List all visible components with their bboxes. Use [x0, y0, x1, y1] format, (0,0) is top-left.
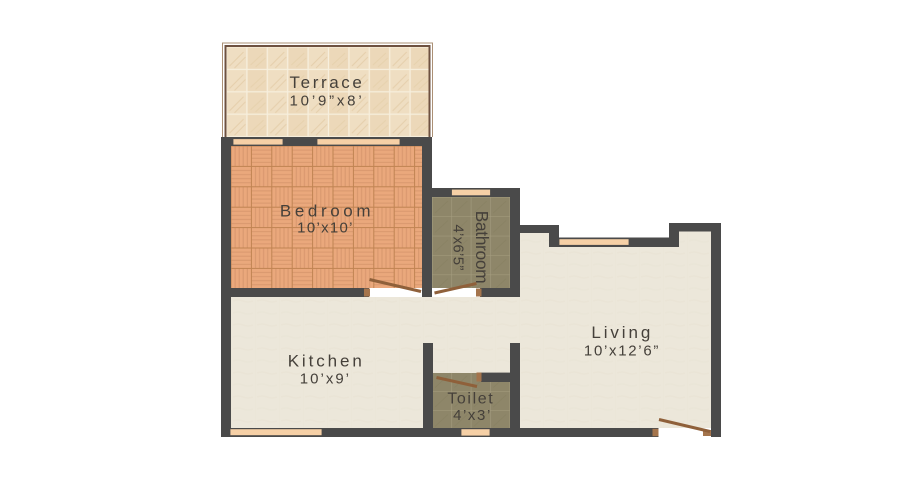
- svg-text:Bathroom: Bathroom: [472, 211, 492, 284]
- svg-text:Bedroom: Bedroom: [280, 201, 374, 220]
- svg-text:Toilet: Toilet: [447, 391, 494, 408]
- svg-text:10’x10’: 10’x10’: [297, 219, 354, 236]
- svg-text:Kitchen: Kitchen: [288, 351, 365, 370]
- svg-text:4’x3’: 4’x3’: [453, 407, 492, 424]
- svg-text:4’x6’5”: 4’x6’5”: [450, 224, 467, 270]
- svg-text:Terrace: Terrace: [290, 73, 365, 92]
- svg-text:Living: Living: [591, 323, 653, 342]
- svg-text:10’x12’6”: 10’x12’6”: [584, 342, 660, 359]
- svg-text:10’x9’: 10’x9’: [300, 370, 351, 387]
- svg-text:10’9”x8’: 10’9”x8’: [290, 93, 365, 110]
